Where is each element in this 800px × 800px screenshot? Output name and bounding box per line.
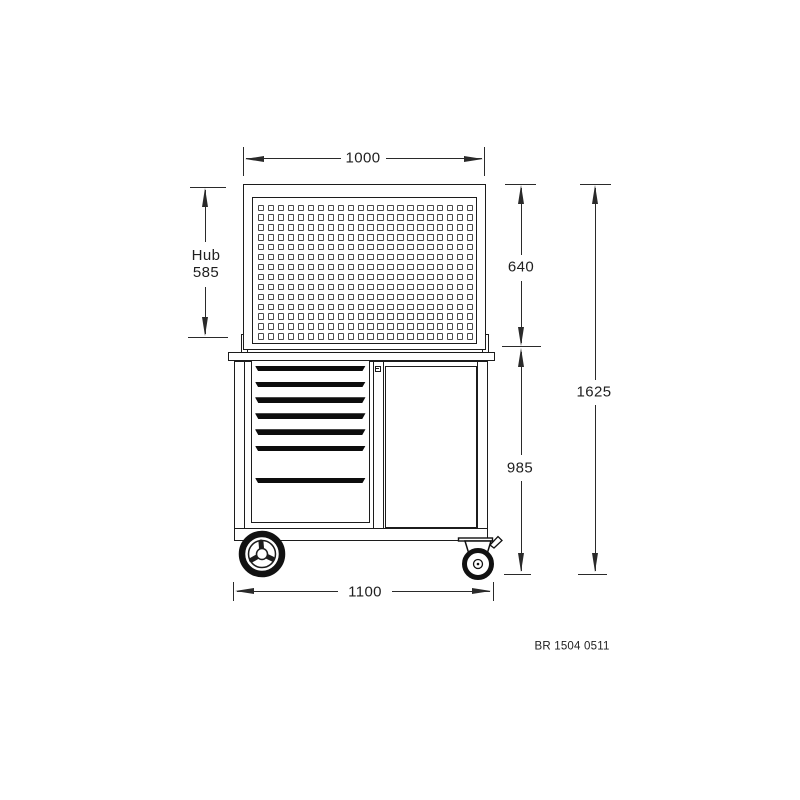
pegboard-hole: [288, 284, 294, 290]
pegboard-hole: [338, 244, 344, 250]
pegboard-hole: [318, 284, 324, 290]
pegboard-hole: [258, 224, 264, 230]
pegboard-hole: [447, 313, 453, 319]
pegboard-hole: [298, 304, 304, 310]
pegboard-hole: [348, 304, 354, 310]
pegboard-hole: [328, 313, 334, 319]
pegboard-hole: [308, 333, 314, 339]
pegboard-hole: [308, 304, 314, 310]
pegboard-hole: [268, 234, 274, 240]
pegboard-hole: [427, 304, 433, 310]
pegboard-hole: [308, 224, 314, 230]
pegboard-hole: [447, 205, 453, 211]
pegboard-hole: [367, 294, 373, 300]
dim-985-tick-bottom: [504, 574, 531, 575]
dim-1625-line-top: [595, 188, 596, 380]
pegboard-hole: [397, 274, 403, 280]
pegboard-hole: [407, 205, 413, 211]
pegboard-hole: [358, 234, 364, 240]
dim-top-tick-left: [243, 147, 244, 176]
pegboard-hole: [348, 264, 354, 270]
pegboard-hole: [348, 323, 354, 329]
dim-top-tick-right: [484, 147, 485, 176]
pegboard-hole: [348, 333, 354, 339]
dim-640-tick-bottom: [502, 346, 541, 347]
pegboard-hole: [258, 304, 264, 310]
pegboard-hole: [288, 304, 294, 310]
pegboard-hole: [348, 244, 354, 250]
pegboard-hole: [298, 333, 304, 339]
pegboard-hole: [328, 274, 334, 280]
pegboard-hole: [447, 294, 453, 300]
pegboard-hole: [447, 244, 453, 250]
pegboard-hole: [328, 224, 334, 230]
pegboard-hole: [437, 224, 443, 230]
pegboard-hole: [417, 244, 423, 250]
center-stile-left: [373, 361, 374, 528]
drawer-handle: [255, 382, 366, 388]
pegboard-hole: [427, 244, 433, 250]
pegboard-hole: [417, 214, 423, 220]
drawer-handle: [255, 478, 366, 484]
pegboard-hole: [467, 205, 473, 211]
pegboard-hole: [338, 333, 344, 339]
pegboard-hole: [397, 224, 403, 230]
pegboard-hole: [407, 254, 413, 260]
dim-640-arrow-up: [518, 185, 524, 204]
pegboard-hole: [397, 205, 403, 211]
pegboard-hole: [407, 294, 413, 300]
dim-hub-label: Hub 585: [190, 247, 223, 281]
pegboard-hole: [437, 244, 443, 250]
pegboard-hole: [268, 313, 274, 319]
pegboard-hole: [367, 244, 373, 250]
pegboard-hole: [437, 274, 443, 280]
pegboard-hole: [377, 333, 383, 339]
drawer-handle: [255, 446, 366, 452]
pegboard-hole: [377, 304, 383, 310]
dim-top-arrow-left: [245, 156, 264, 162]
pegboard-hole: [407, 284, 413, 290]
pegboard-hole: [278, 205, 284, 211]
pegboard-hole: [308, 244, 314, 250]
pegboard-hole: [437, 234, 443, 240]
pegboard-hole: [437, 333, 443, 339]
pegboard-hole: [377, 244, 383, 250]
pegboard-hole: [417, 254, 423, 260]
dim-hub-arrow-up: [202, 188, 208, 207]
pegboard-hole: [338, 284, 344, 290]
pegboard-hole: [397, 304, 403, 310]
pegboard-hole: [318, 205, 324, 211]
pegboard-hole: [318, 294, 324, 300]
pegboard-hole: [318, 304, 324, 310]
pegboard-hole: [467, 234, 473, 240]
pegboard-hole: [417, 274, 423, 280]
dim-1625-tick-bottom: [578, 574, 607, 575]
pegboard-hole: [447, 214, 453, 220]
pegboard-hole: [437, 313, 443, 319]
pegboard-hole: [437, 214, 443, 220]
pegboard-hole: [457, 244, 463, 250]
pegboard-hole: [318, 254, 324, 260]
pegboard-hole: [338, 323, 344, 329]
pegboard-hole: [377, 284, 383, 290]
pegboard-hole: [258, 254, 264, 260]
pegboard-hole: [298, 323, 304, 329]
pegboard-hole: [268, 284, 274, 290]
pegboard-hole: [258, 214, 264, 220]
pegboard-hole: [268, 224, 274, 230]
pegboard-hole: [377, 294, 383, 300]
pegboard-hole: [467, 284, 473, 290]
pegboard-hole: [268, 323, 274, 329]
pegboard-hole: [367, 264, 373, 270]
pegboard-hole: [318, 323, 324, 329]
pegboard-hole: [457, 333, 463, 339]
pegboard-hole: [318, 333, 324, 339]
pegboard-hole: [407, 234, 413, 240]
pegboard-hole: [268, 294, 274, 300]
pegboard-hole: [348, 214, 354, 220]
pegboard-hole: [348, 234, 354, 240]
pegboard-hole: [328, 264, 334, 270]
hub-word: Hub: [192, 247, 221, 264]
pegboard-hole: [407, 214, 413, 220]
pegboard-hole: [447, 284, 453, 290]
pegboard-hole: [387, 234, 393, 240]
pegboard-hole: [457, 234, 463, 240]
pegboard-hole: [288, 313, 294, 319]
pegboard-hole: [437, 294, 443, 300]
pegboard-hole: [278, 234, 284, 240]
pegboard-hole: [417, 313, 423, 319]
pegboard-hole: [417, 205, 423, 211]
pegboard-hole: [298, 234, 304, 240]
pegboard-hole: [387, 294, 393, 300]
pegboard-hole: [407, 244, 413, 250]
pegboard-hole: [298, 205, 304, 211]
pegboard-hole: [427, 214, 433, 220]
pegboard-hole: [467, 274, 473, 280]
pegboard-hole: [288, 244, 294, 250]
pegboard-hole: [367, 304, 373, 310]
pegboard-hole: [338, 294, 344, 300]
pegboard-hole: [358, 214, 364, 220]
cabinet-right-inner-wall: [477, 361, 478, 528]
pegboard-hole: [427, 254, 433, 260]
pegboard-hole: [328, 234, 334, 240]
pegboard-hole: [348, 224, 354, 230]
pegboard-hole: [268, 254, 274, 260]
pegboard-hole: [427, 264, 433, 270]
pegboard-hole: [288, 205, 294, 211]
pegboard-hole: [377, 313, 383, 319]
pegboard-hole: [377, 214, 383, 220]
pegboard-hole: [467, 224, 473, 230]
dim-1625-line-bottom: [595, 405, 596, 571]
fixed-wheel: [234, 526, 290, 582]
pegboard-hole: [467, 264, 473, 270]
dim-bottom-width-label: 1100: [346, 584, 384, 601]
pegboard-hole: [387, 274, 393, 280]
drawer-handle: [255, 366, 366, 372]
pegboard-hole: [387, 323, 393, 329]
pegboard-hole: [397, 294, 403, 300]
pegboard-hole: [278, 254, 284, 260]
pegboard-hole: [318, 274, 324, 280]
pegboard-hole: [278, 323, 284, 329]
pegboard-hole: [377, 323, 383, 329]
drawer-handle: [255, 413, 366, 419]
pegboard-hole: [437, 264, 443, 270]
dim-1625-arrow-down: [592, 553, 598, 572]
pegboard-hole: [358, 313, 364, 319]
pegboard-hole: [278, 333, 284, 339]
pegboard-hole: [407, 313, 413, 319]
pegboard-hole: [328, 294, 334, 300]
pegboard-hole: [397, 244, 403, 250]
pegboard-hole: [437, 254, 443, 260]
pegboard-hole: [467, 333, 473, 339]
cabinet-door: [385, 366, 478, 529]
pegboard-hole: [447, 224, 453, 230]
pegboard-hole: [308, 205, 314, 211]
pegboard-hole: [427, 323, 433, 329]
pegboard-hole: [278, 294, 284, 300]
dim-bottom-tick-right: [493, 582, 494, 601]
pegboard-hole: [407, 304, 413, 310]
pegboard-hole: [268, 304, 274, 310]
pegboard-hole: [308, 284, 314, 290]
pegboard-hole: [427, 205, 433, 211]
pegboard-hole: [308, 214, 314, 220]
dim-hub-tick-top: [190, 187, 226, 188]
pegboard-hole: [268, 274, 274, 280]
pegboard-hole: [288, 254, 294, 260]
dim-total-height-label: 1625: [575, 384, 614, 401]
pegboard-hole: [348, 284, 354, 290]
pegboard-hole: [417, 284, 423, 290]
pegboard-hole: [328, 304, 334, 310]
pegboard-hole: [457, 304, 463, 310]
pegboard-hole: [338, 254, 344, 260]
pegboard-hole: [387, 304, 393, 310]
pegboard-hole: [367, 284, 373, 290]
pegboard-hole: [258, 244, 264, 250]
dim-hub-tick-bottom: [188, 337, 228, 338]
pegboard-hole: [308, 264, 314, 270]
pegboard-hole: [427, 234, 433, 240]
pegboard-hole: [308, 294, 314, 300]
pegboard-hole: [258, 264, 264, 270]
pegboard-hole: [298, 313, 304, 319]
pegboard-hole: [457, 254, 463, 260]
pegboard-hole: [328, 333, 334, 339]
pegboard-hole: [447, 323, 453, 329]
pegboard-hole: [467, 244, 473, 250]
pegboard-hole: [308, 234, 314, 240]
pegboard-hole: [268, 264, 274, 270]
pegboard-hole: [298, 244, 304, 250]
pegboard-hole: [358, 254, 364, 260]
pegboard-hole: [397, 333, 403, 339]
pegboard-hole: [387, 264, 393, 270]
pegboard-hole: [417, 234, 423, 240]
pegboard-hole: [258, 274, 264, 280]
pegboard-hole: [427, 333, 433, 339]
pegboard-hole: [397, 323, 403, 329]
pegboard-hole: [377, 274, 383, 280]
pegboard-hole: [467, 214, 473, 220]
pegboard-hole: [278, 304, 284, 310]
pegboard-hole: [298, 214, 304, 220]
pegboard-hole: [467, 313, 473, 319]
pegboard-hole: [417, 333, 423, 339]
pegboard-hole: [358, 244, 364, 250]
pegboard-hole: [338, 224, 344, 230]
pegboard-hole: [328, 214, 334, 220]
drawer-handle: [255, 429, 366, 435]
pegboard-hole: [348, 313, 354, 319]
pegboard-hole: [407, 224, 413, 230]
pegboard-hole: [437, 284, 443, 290]
dim-top-arrow-right: [464, 156, 483, 162]
pegboard-hole: [328, 284, 334, 290]
pegboard-hole: [288, 214, 294, 220]
pegboard-hole: [457, 224, 463, 230]
pegboard-hole: [417, 294, 423, 300]
pegboard-hole: [407, 323, 413, 329]
pegboard-hole: [427, 284, 433, 290]
pegboard-hole: [348, 205, 354, 211]
pegboard-hole: [457, 205, 463, 211]
pegboard-hole: [397, 234, 403, 240]
pegboard-hole: [467, 323, 473, 329]
pegboard-hole: [338, 264, 344, 270]
pegboard-hole: [377, 264, 383, 270]
trolley-technical-drawing: 1000 Hub 585 640 985 1625 1100 BR 1504 0…: [0, 0, 800, 800]
pegboard-hole: [427, 313, 433, 319]
pegboard-hole: [348, 294, 354, 300]
dim-640-arrow-down: [518, 327, 524, 346]
pegboard-hole: [328, 205, 334, 211]
pegboard-hole: [298, 254, 304, 260]
pegboard-hole: [288, 333, 294, 339]
pegboard-hole: [427, 294, 433, 300]
pegboard-hole: [278, 264, 284, 270]
pegboard-hole: [288, 323, 294, 329]
pegboard-hole: [367, 323, 373, 329]
pegboard-hole: [358, 205, 364, 211]
pegboard-hole: [338, 304, 344, 310]
pegboard-hole: [397, 214, 403, 220]
pegboard-hole: [258, 294, 264, 300]
pegboard-hole: [338, 214, 344, 220]
pegboard-hole: [258, 323, 264, 329]
pegboard-hole: [387, 214, 393, 220]
pegboard-hole: [397, 284, 403, 290]
dim-985-arrow-down: [518, 553, 524, 572]
pegboard-hole: [268, 205, 274, 211]
pegboard-hole: [367, 333, 373, 339]
pegboard-hole: [358, 333, 364, 339]
pegboard-hole: [318, 313, 324, 319]
pegboard-hole: [417, 323, 423, 329]
pegboard-hole: [358, 304, 364, 310]
pegboard-hole: [397, 254, 403, 260]
pegboard-hole: [367, 274, 373, 280]
pegboard-hole: [278, 274, 284, 280]
pegboard-hole: [338, 313, 344, 319]
pegboard-hole: [348, 254, 354, 260]
pegboard-hole: [268, 214, 274, 220]
pegboard-hole: [457, 313, 463, 319]
pegboard-hole: [427, 274, 433, 280]
pegboard-hole: [258, 333, 264, 339]
dim-985-arrow-up: [518, 348, 524, 367]
pegboard-hole: [447, 333, 453, 339]
pegboard-hole: [417, 224, 423, 230]
pegboard-hole: [358, 224, 364, 230]
pegboard-hole: [278, 244, 284, 250]
pegboard-hole: [367, 214, 373, 220]
pegboard-hole: [358, 264, 364, 270]
pegboard-hole: [308, 254, 314, 260]
dim-hub-arrow-down: [202, 317, 208, 336]
dim-985-line-top: [521, 352, 522, 455]
pegboard-hole: [447, 264, 453, 270]
drawer-handle: [255, 397, 366, 403]
pegboard-hole: [318, 234, 324, 240]
pegboard-hole: [457, 264, 463, 270]
pegboard-hole: [298, 224, 304, 230]
pegboard-hole: [387, 254, 393, 260]
pegboard-hole: [278, 313, 284, 319]
pegboard-hole: [308, 323, 314, 329]
dim-bottom-tick-left: [233, 582, 234, 601]
pegboard-inner-frame: [252, 197, 477, 344]
pegboard-hole: [338, 234, 344, 240]
door-lock-keyhole: [376, 368, 379, 370]
pegboard-hole: [457, 323, 463, 329]
pegboard-hole: [298, 274, 304, 280]
pegboard-hole: [318, 214, 324, 220]
pegboard-hole: [367, 254, 373, 260]
pegboard-hole: [338, 205, 344, 211]
pegboard-hole: [457, 214, 463, 220]
pegboard-hole: [387, 333, 393, 339]
dim-top-width-label: 1000: [344, 150, 383, 167]
pegboard-hole: [308, 313, 314, 319]
pegboard-hole: [358, 274, 364, 280]
dim-panel-height-label: 640: [506, 259, 536, 276]
pegboard-hole: [457, 284, 463, 290]
pegboard-hole: [288, 234, 294, 240]
pegboard-hole: [377, 234, 383, 240]
pegboard-hole: [258, 313, 264, 319]
pegboard-hole: [318, 264, 324, 270]
pegboard-hole: [437, 304, 443, 310]
pegboard-hole: [288, 224, 294, 230]
pegboard-hole: [278, 214, 284, 220]
pegboard-hole: [387, 205, 393, 211]
pegboard-hole: [447, 274, 453, 280]
pegboard-hole: [407, 264, 413, 270]
pegboard-hole: [278, 224, 284, 230]
pegboard-hole: [367, 205, 373, 211]
worktop: [228, 352, 495, 361]
